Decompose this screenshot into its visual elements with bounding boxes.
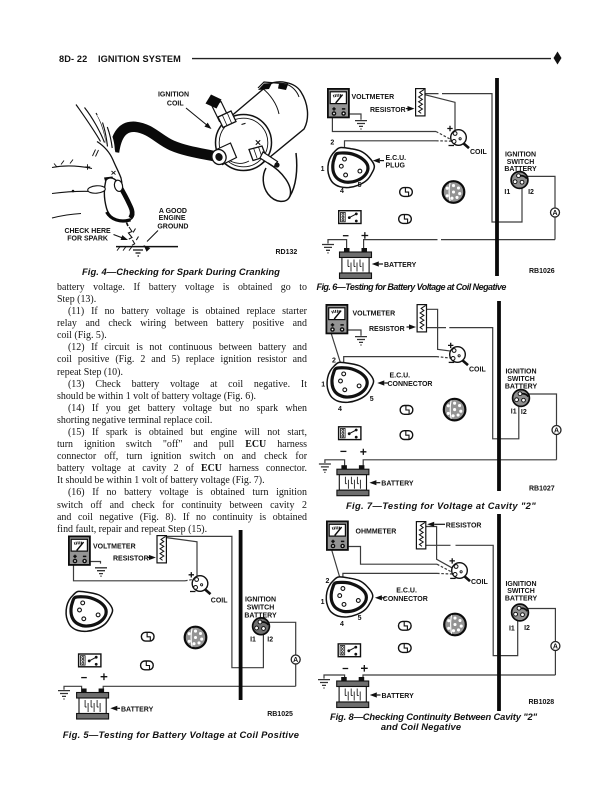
svg-text:CONNECTOR: CONNECTOR [383, 596, 428, 603]
svg-text:IGNITION: IGNITION [505, 152, 536, 159]
svg-text:2: 2 [326, 578, 330, 585]
svg-text:COIL: COIL [167, 100, 184, 107]
svg-text:A GOOD: A GOOD [159, 208, 187, 215]
svg-text:VOLTMETER: VOLTMETER [352, 94, 395, 101]
svg-text:BATTERY: BATTERY [384, 262, 417, 269]
svg-text:I1: I1 [250, 637, 256, 644]
svg-text:FOR SPARK: FOR SPARK [67, 236, 108, 243]
svg-text:4: 4 [340, 621, 344, 628]
svg-text:RB1028: RB1028 [529, 699, 555, 706]
svg-text:RD132: RD132 [276, 249, 298, 256]
svg-text:CONNECTOR: CONNECTOR [388, 381, 433, 388]
svg-text:1: 1 [321, 599, 325, 606]
svg-text:RESISTOR: RESISTOR [113, 555, 149, 562]
svg-text:OHMMETER: OHMMETER [356, 528, 397, 535]
svg-text:SWITCH: SWITCH [507, 159, 535, 166]
svg-text:E.C.U.: E.C.U. [396, 587, 417, 594]
svg-text:I2: I2 [528, 189, 534, 196]
svg-text:I1: I1 [511, 408, 517, 415]
svg-text:CHECK HERE: CHECK HERE [64, 228, 111, 235]
svg-text:5: 5 [358, 615, 362, 622]
svg-text:RESISTOR: RESISTOR [369, 326, 405, 333]
svg-text:IGNITION: IGNITION [505, 581, 536, 588]
svg-text:RB1025: RB1025 [267, 711, 293, 718]
svg-text:BATTERY: BATTERY [505, 384, 538, 391]
svg-text:RB1026: RB1026 [529, 268, 555, 275]
svg-text:I2: I2 [267, 637, 273, 644]
svg-text:RESISTOR: RESISTOR [446, 523, 482, 530]
svg-text:ENGINE: ENGINE [159, 215, 186, 222]
svg-text:BATTERY: BATTERY [504, 166, 537, 173]
svg-text:2: 2 [330, 139, 334, 146]
svg-text:I1: I1 [509, 626, 515, 633]
svg-text:COIL: COIL [470, 149, 487, 156]
svg-text:BATTERY: BATTERY [382, 693, 415, 700]
svg-text:2: 2 [332, 358, 336, 365]
svg-text:VOLTMETER: VOLTMETER [93, 544, 136, 551]
svg-text:4: 4 [338, 406, 342, 413]
svg-text:RESISTOR: RESISTOR [370, 107, 406, 114]
svg-text:4: 4 [340, 188, 344, 195]
svg-text:5: 5 [358, 182, 362, 189]
svg-text:BATTERY: BATTERY [381, 480, 414, 487]
svg-text:COIL: COIL [469, 366, 486, 373]
svg-text:5: 5 [370, 396, 374, 403]
svg-text:COIL: COIL [211, 598, 228, 605]
svg-text:I2: I2 [524, 625, 530, 632]
svg-text:IGNITION: IGNITION [158, 91, 189, 98]
svg-text:SWITCH: SWITCH [507, 588, 535, 595]
svg-text:SWITCH: SWITCH [507, 376, 535, 383]
svg-text:VOLTMETER: VOLTMETER [353, 310, 396, 317]
svg-text:E.C.U.: E.C.U. [386, 155, 407, 162]
svg-text:BATTERY: BATTERY [505, 595, 538, 602]
svg-text:PLUG: PLUG [386, 162, 406, 169]
svg-text:COIL: COIL [471, 579, 488, 586]
svg-text:GROUND: GROUND [157, 223, 188, 230]
svg-text:1: 1 [321, 166, 325, 173]
svg-text:BATTERY: BATTERY [121, 706, 154, 713]
svg-text:SWITCH: SWITCH [247, 605, 275, 612]
svg-text:BATTERY: BATTERY [244, 613, 277, 620]
svg-text:I1: I1 [504, 189, 510, 196]
svg-text:E.C.U.: E.C.U. [390, 373, 411, 380]
svg-text:I2: I2 [521, 409, 527, 416]
svg-text:IGNITION: IGNITION [245, 597, 276, 604]
svg-text:RB1027: RB1027 [529, 486, 555, 493]
svg-text:1: 1 [321, 381, 325, 388]
svg-text:IGNITION: IGNITION [505, 369, 536, 376]
